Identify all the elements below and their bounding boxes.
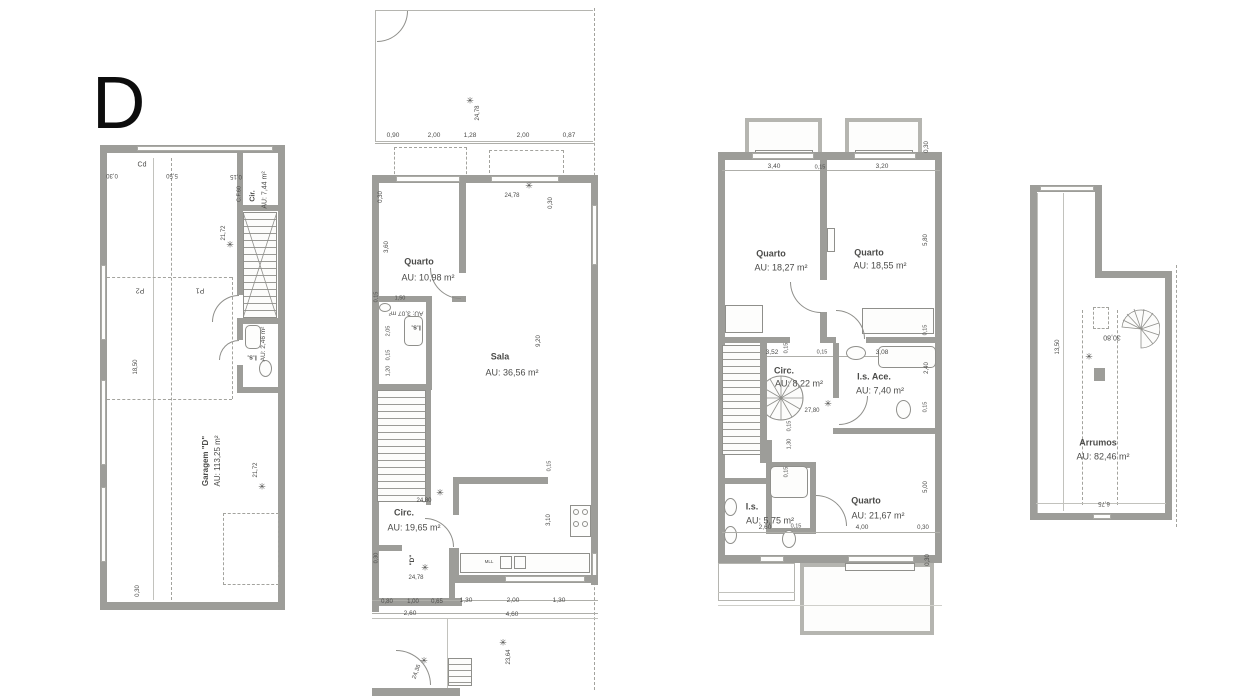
plan-label: AU: 3,07 m² [389, 309, 424, 316]
plan-label: 5,50 [166, 172, 178, 178]
plan-label: AU: 82,46 m² [1076, 453, 1129, 462]
plan-label: 0,15 [230, 173, 242, 179]
plan-label: 27,80 [804, 408, 819, 414]
level-marker-icon: ✳ [436, 489, 444, 498]
plan-label: 2,05 [386, 326, 392, 337]
plan-label: MLL [485, 560, 494, 565]
floor-plan-sheet: D [0, 0, 1237, 696]
plan-label: 0,90 [387, 133, 400, 140]
plan-label: P1 [196, 287, 205, 294]
plan-label: 0,15 [787, 421, 793, 432]
plan-label: 21,72 [221, 225, 227, 240]
plan-label: Garagem "D" [202, 436, 210, 486]
plan-label: Quarto [851, 497, 881, 506]
plan-label: AU: 7,44 m² [262, 171, 269, 208]
plan-label: AU: 36,56 m² [485, 369, 538, 378]
level-marker-icon: ✳ [420, 657, 428, 666]
plan-label: 0,30 [924, 141, 930, 153]
plan-label: I.s. Ace. [857, 373, 891, 382]
plan-label: 9,20 [536, 335, 542, 347]
plan-label: 0,30 [374, 553, 380, 564]
plan-label: 0,15 [784, 467, 790, 478]
plan-label: 0,15 [923, 325, 929, 336]
plan-label: 3,10 [546, 514, 552, 526]
level-marker-icon: ✳ [226, 241, 234, 250]
plan-label: AU: 10,98 m² [401, 274, 454, 283]
plan-label: 2,00 [428, 133, 441, 140]
plan-label: 1,00 [407, 599, 419, 605]
plan-label: Circ. [774, 367, 794, 376]
plan-label: I.s. [746, 503, 759, 512]
level-marker-icon: ✳ [499, 639, 507, 648]
plan-label: AU: 19,65 m² [387, 524, 440, 533]
plan-label: 1,20 [386, 366, 392, 377]
plan-label: 0,30 [378, 191, 384, 203]
plan-label: 0,30 [548, 197, 554, 209]
plan-label: 24,36 [412, 664, 423, 680]
labels-layer: Cd0,305,500,15C.F.60Cir.AU: 7,44 m²21,72… [0, 0, 1237, 696]
level-marker-icon: ✳ [824, 400, 832, 409]
plan-label: 23,64 [506, 649, 512, 664]
plan-label: AU: 113,25 m² [214, 436, 222, 487]
plan-label: 3,60 [384, 241, 390, 253]
plan-label: 4,60 [506, 612, 519, 619]
plan-label: 5,80 [923, 234, 929, 246]
plan-label: Quarto [404, 258, 434, 267]
plan-label: AU: 2,46 m² [261, 327, 268, 362]
level-marker-icon: ✳ [258, 483, 266, 492]
plan-label: 2,40 [924, 362, 930, 374]
plan-label: 21,72 [253, 462, 259, 477]
plan-label: Quarto [756, 250, 786, 259]
plan-label: 2,60 [759, 525, 772, 532]
plan-label: 0,15 [817, 350, 828, 356]
plan-label: I.s. [411, 324, 421, 331]
plan-label: 0,30 [925, 554, 931, 566]
plan-label: Cd [138, 162, 147, 169]
plan-label: 24,78 [475, 105, 481, 120]
plan-label: Arrumos [1079, 439, 1117, 448]
plan-label: 0,30 [917, 525, 929, 531]
plan-label: Cir. [250, 190, 257, 201]
plan-label: I.s. [247, 354, 257, 361]
plan-label: 2,00 [507, 598, 520, 605]
plan-label: 0,80 [381, 599, 393, 605]
plan-label: 5,00 [923, 481, 929, 493]
plan-label: 1,28 [464, 133, 477, 140]
plan-label: 24,78 [408, 575, 423, 581]
plan-label: 0,15 [547, 461, 553, 472]
plan-label: 0,87 [563, 133, 576, 140]
plan-label: 6,75 [1098, 500, 1110, 506]
plan-label: 0,30 [135, 585, 141, 597]
plan-label: P2 [136, 287, 145, 294]
plan-label: Sala [491, 353, 510, 362]
plan-label: 1,50 [395, 296, 406, 302]
plan-label: 0,15 [386, 350, 392, 361]
plan-label: 0,15 [791, 524, 802, 530]
plan-label: 1,30 [460, 598, 473, 605]
plan-label: 0,30 [106, 172, 118, 178]
plan-label: 1,30 [787, 439, 793, 450]
plan-label: 2,60 [404, 611, 417, 618]
plan-label: 0,15 [374, 292, 380, 303]
plan-label: AU: 8,22 m² [775, 380, 823, 389]
plan-label: 3,52 [766, 350, 779, 357]
plan-label: AU: 21,67 m² [851, 512, 904, 521]
plan-label: 0,15 [815, 165, 826, 171]
plan-label: 2,00 [517, 133, 530, 140]
plan-label: AU: 18,55 m² [853, 262, 906, 271]
plan-label: Quarto [854, 249, 884, 258]
plan-label: 3,20 [876, 164, 889, 171]
plan-label: 0,65 [431, 599, 443, 605]
level-marker-icon: ✳ [421, 564, 429, 573]
plan-label: 18,50 [133, 359, 139, 374]
plan-label: 3,08 [876, 350, 889, 357]
level-marker-icon: ✳ [466, 97, 474, 106]
level-marker-icon: ✳ [1085, 353, 1093, 362]
plan-label: 13,50 [1055, 339, 1061, 354]
plan-label: 0,15 [784, 343, 790, 354]
plan-label: 30,80 [1103, 334, 1121, 341]
plan-label: 3,40 [768, 164, 781, 171]
plan-label: 0,15 [923, 402, 929, 413]
plan-label: AU: 7,40 m² [856, 387, 904, 396]
plan-label: C.F.60 [237, 186, 243, 202]
plan-label: AU: 18,27 m² [754, 264, 807, 273]
plan-label: 1,30 [553, 598, 566, 605]
plan-label: Circ. [394, 509, 414, 518]
plan-label: 24,80 [416, 498, 431, 504]
plan-label: 4,00 [856, 525, 869, 532]
plan-label: "D" [410, 555, 417, 566]
level-marker-icon: ✳ [525, 182, 533, 191]
plan-label: 24,78 [504, 193, 519, 199]
